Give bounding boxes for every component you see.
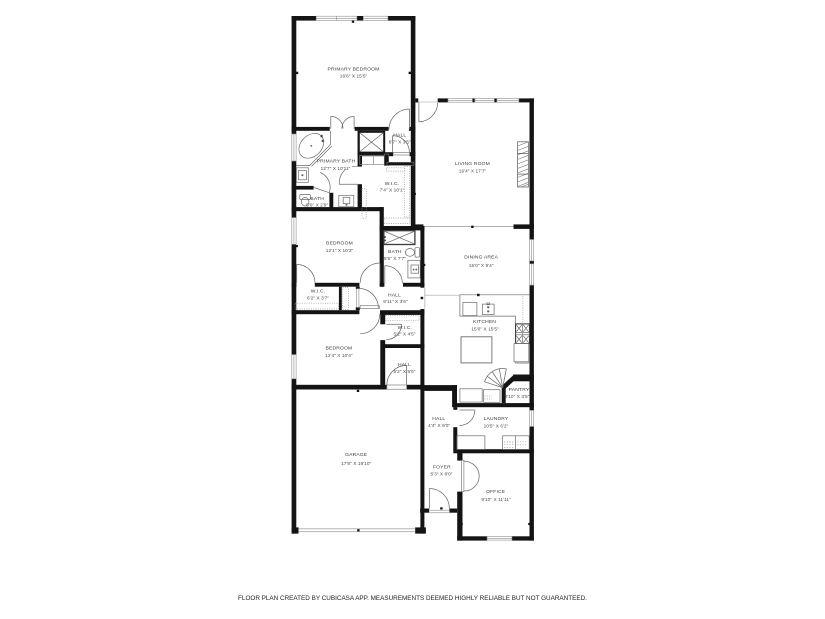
svg-text:HALL: HALL [432, 416, 445, 422]
svg-text:8'11" X 3'6": 8'11" X 3'6" [383, 299, 408, 305]
svg-text:PANTRY: PANTRY [509, 387, 530, 393]
svg-text:16'6" X 15'5": 16'6" X 15'5" [340, 74, 368, 80]
svg-text:5'3" X 8'0": 5'3" X 8'0" [430, 472, 452, 478]
svg-text:BEDROOM: BEDROOM [326, 240, 353, 246]
svg-text:W.I.C.: W.I.C. [311, 289, 326, 295]
svg-text:GARAGE: GARAGE [345, 452, 368, 458]
svg-text:BATH: BATH [388, 249, 402, 255]
svg-text:4'4" X 9'0": 4'4" X 9'0" [428, 423, 450, 429]
svg-text:16'4" X 17'7": 16'4" X 17'7" [459, 169, 487, 175]
svg-text:W.I.C.: W.I.C. [385, 181, 400, 187]
svg-text:DINING AREA: DINING AREA [464, 255, 498, 261]
svg-text:7'4" X 10'1": 7'4" X 10'1" [380, 188, 405, 194]
svg-text:6'7" X 3'5": 6'7" X 3'5" [389, 140, 411, 146]
svg-text:6'2" X 3'7": 6'2" X 3'7" [307, 295, 329, 301]
svg-text:15'0" X 15'5": 15'0" X 15'5" [471, 327, 499, 333]
svg-text:3'10" X 3'5": 3'10" X 3'5" [505, 394, 530, 400]
svg-text:PRIMARY BEDROOM: PRIMARY BEDROOM [328, 66, 380, 72]
svg-text:HALL: HALL [388, 292, 401, 298]
svg-text:HALL: HALL [398, 362, 411, 368]
svg-text:5'2" X 5'6": 5'2" X 5'6" [393, 369, 415, 375]
svg-text:FOYER: FOYER [433, 465, 451, 471]
svg-text:12'1" X 10'3": 12'1" X 10'3" [326, 248, 354, 254]
svg-text:W.I.C.: W.I.C. [398, 325, 413, 331]
svg-text:KITCHEN: KITCHEN [473, 319, 496, 325]
svg-text:PRIMARY BATH: PRIMARY BATH [317, 159, 356, 165]
svg-text:5'2" X 4'5": 5'2" X 4'5" [393, 332, 415, 338]
svg-text:12'4" X 10'4": 12'4" X 10'4" [325, 353, 353, 359]
svg-text:BEDROOM: BEDROOM [326, 345, 353, 351]
svg-text:OFFICE: OFFICE [486, 489, 506, 495]
svg-text:LIVING ROOM: LIVING ROOM [455, 161, 490, 167]
svg-text:9'10" X 11'11": 9'10" X 11'11" [481, 497, 511, 503]
svg-text:17'8" X 19'10": 17'8" X 19'10" [341, 461, 371, 467]
svg-text:BATH: BATH [310, 196, 324, 202]
svg-text:5'0" X 2'9": 5'0" X 2'9" [306, 202, 328, 208]
svg-text:LAUNDRY: LAUNDRY [484, 416, 509, 422]
svg-text:15'0" X 9'4": 15'0" X 9'4" [469, 263, 494, 269]
svg-text:5'5" X 7'7": 5'5" X 7'7" [384, 256, 406, 262]
svg-text:HALL: HALL [393, 133, 406, 139]
svg-text:12'7" X 10'11": 12'7" X 10'11" [321, 166, 351, 172]
svg-text:10'5" X 6'2": 10'5" X 6'2" [484, 423, 509, 429]
svg-text:FLOOR PLAN CREATED BY CUBICASA: FLOOR PLAN CREATED BY CUBICASA APP. MEAS… [238, 595, 587, 602]
